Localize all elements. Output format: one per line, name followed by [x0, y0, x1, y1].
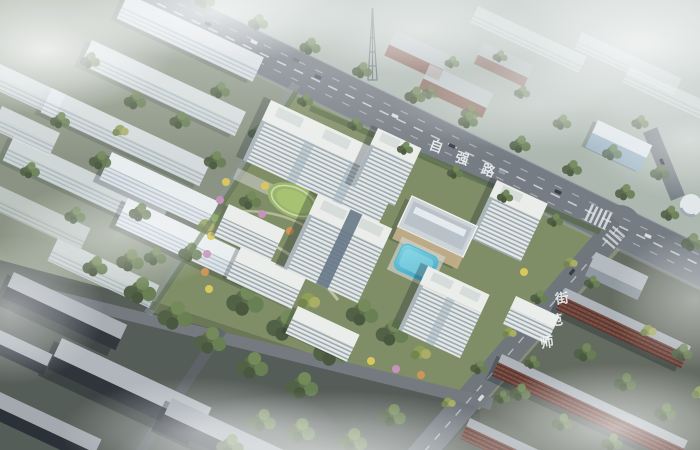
rendering-canvas: 自 强 路 街 范 师 — [0, 0, 700, 450]
haze-overlay — [0, 0, 700, 450]
aerial-rendering: 自 强 路 街 范 师 — [0, 0, 700, 450]
atmosphere-tint — [0, 0, 700, 450]
